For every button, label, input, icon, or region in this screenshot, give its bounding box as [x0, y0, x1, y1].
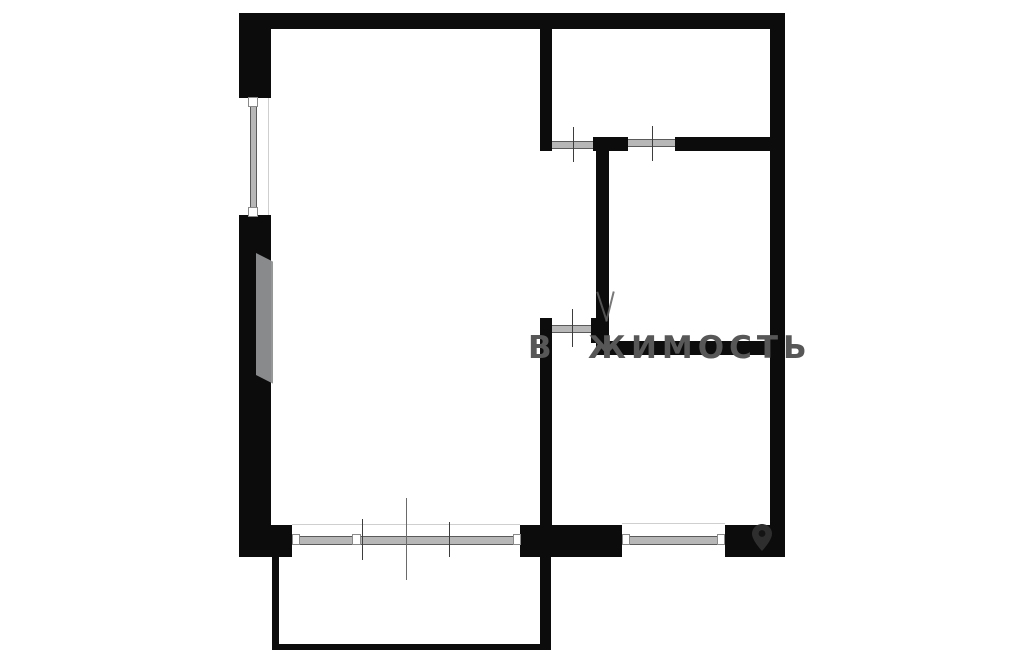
window-tick — [449, 522, 450, 557]
top-exterior-wall — [239, 13, 785, 29]
balcony-wall-left — [272, 552, 279, 650]
watermark-parallelogram — [256, 253, 273, 384]
location-pin-icon — [752, 524, 772, 551]
left-window-glazing — [250, 107, 257, 208]
interior-wall-hall-left — [540, 27, 552, 151]
door-tick — [572, 309, 573, 347]
window-cap — [248, 97, 258, 107]
faint-line-kitchen-window-face — [622, 523, 725, 524]
bottom-wall-middle-block — [520, 525, 622, 557]
kitchen-window-glazing — [629, 536, 718, 545]
window-cap — [352, 534, 361, 545]
window-cap — [513, 534, 521, 545]
balcony-wall-bottom — [272, 644, 551, 650]
window-cap — [292, 534, 300, 545]
faint-line-left-window-jamb — [268, 98, 269, 215]
interior-wall-hall-bottom — [675, 137, 770, 151]
watermark-text-fragment-left: В — [528, 333, 557, 364]
window-tick — [362, 519, 363, 560]
balcony-wall-right — [540, 557, 551, 650]
door-tick — [573, 127, 574, 162]
door-tick — [652, 126, 653, 161]
floorplan-image: В ЖИМОСТЬ — [0, 0, 1024, 657]
window-measure-line — [406, 498, 407, 580]
watermark-text-fragment-right: ЖИМОСТЬ — [588, 333, 812, 364]
window-cap — [717, 534, 725, 545]
bottom-wall-left-block — [239, 525, 292, 557]
window-cap — [622, 534, 630, 545]
window-cap — [248, 207, 258, 217]
interior-wall-bath-corner — [593, 137, 628, 151]
left-exterior-wall-upper — [239, 13, 271, 98]
right-exterior-wall — [770, 13, 785, 557]
